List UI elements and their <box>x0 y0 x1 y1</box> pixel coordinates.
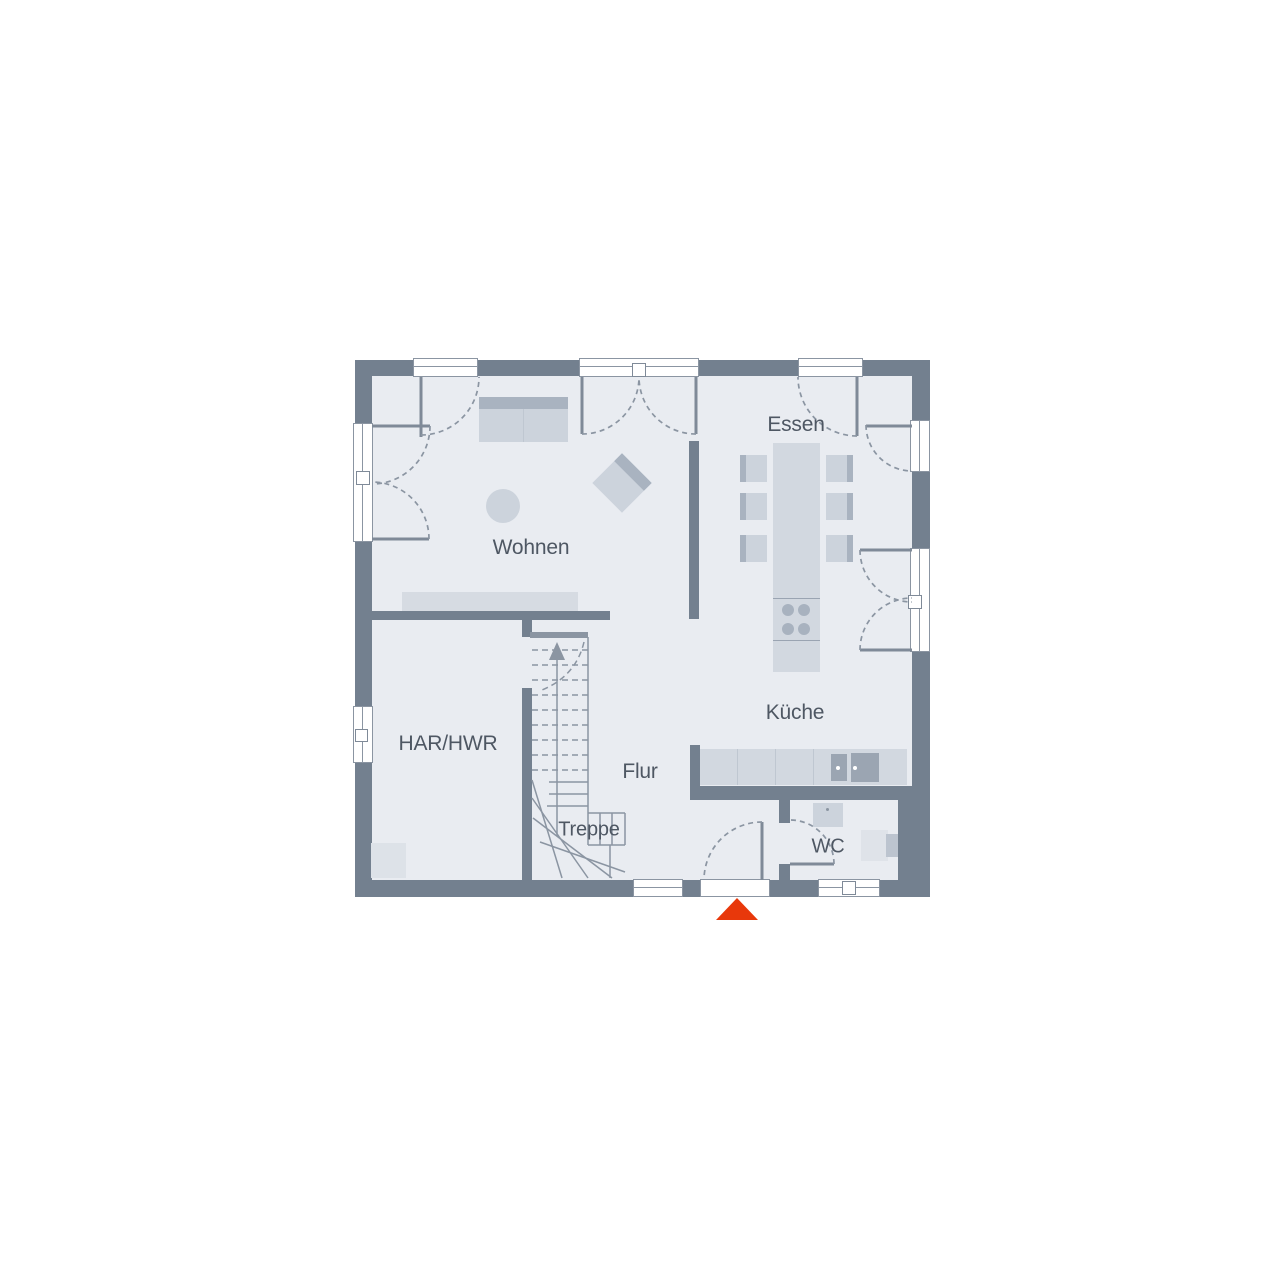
stair-direction-arrow-icon <box>549 642 565 660</box>
room-label-essen: Essen <box>767 413 824 437</box>
stair-walk-line <box>542 642 584 690</box>
room-label-wc: WC <box>812 836 845 859</box>
stair-upper-steps <box>532 642 588 770</box>
room-label-flur: Flur <box>622 760 657 784</box>
room-label-har-hwr: HAR/HWR <box>399 732 498 756</box>
entrance-marker-icon <box>716 898 758 920</box>
staircase <box>532 637 625 878</box>
room-label-kueche: Küche <box>766 701 825 725</box>
door-swing-arcs <box>372 377 912 880</box>
floor-plan-canvas: Wohnen Essen Küche Flur Treppe HAR/HWR W… <box>0 0 1280 1280</box>
plan-linework <box>0 0 1280 1280</box>
room-label-treppe: Treppe <box>558 819 619 842</box>
door-leaves <box>372 377 912 880</box>
room-label-wohnen: Wohnen <box>493 536 570 560</box>
